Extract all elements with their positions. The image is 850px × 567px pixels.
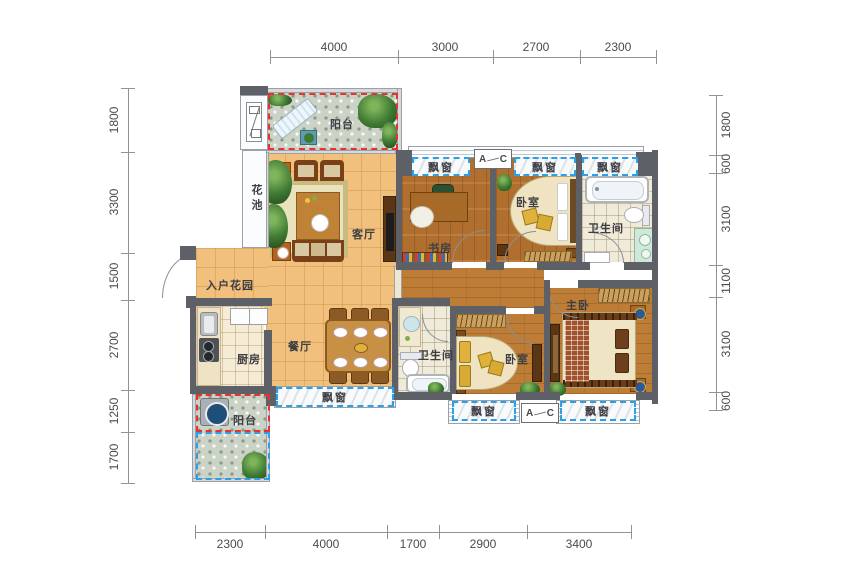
- section-line: [534, 412, 546, 416]
- wall: [636, 392, 658, 400]
- stove: [199, 338, 219, 362]
- wall: [266, 150, 396, 154]
- tick: [631, 525, 632, 539]
- dim-top-2: 3000: [415, 40, 475, 54]
- dim-left-1: 1800: [107, 90, 121, 150]
- label-bedroom-mid: 卧室: [505, 351, 529, 367]
- sofa: [292, 240, 344, 262]
- tick: [121, 152, 135, 153]
- wall: [624, 262, 658, 270]
- wall: [392, 392, 452, 400]
- dim-right-6: 600: [719, 371, 733, 431]
- label-balcony-bottom: 阳台: [233, 412, 257, 428]
- wall: [186, 296, 196, 308]
- wall: [450, 306, 506, 314]
- bathtub: [585, 176, 649, 203]
- tick: [121, 88, 135, 89]
- dim-line-left: [128, 88, 129, 483]
- wall: [264, 330, 272, 388]
- label-bathroom-top: 卫生间: [588, 220, 624, 236]
- wall: [396, 152, 402, 264]
- section-line: [487, 158, 499, 162]
- tick: [493, 50, 494, 64]
- section-marker-a: A: [526, 408, 533, 419]
- bay-window-label: 飘窗: [585, 403, 611, 419]
- tick: [270, 50, 271, 64]
- coffee-table: [296, 192, 340, 240]
- shower-area: [634, 228, 654, 264]
- label-living-room: 客厅: [352, 226, 376, 242]
- bay-window: 飘窗: [514, 157, 576, 176]
- dim-bottom-2: 4000: [296, 537, 356, 551]
- bay-window-label: 飘窗: [471, 403, 497, 419]
- wall: [537, 262, 590, 270]
- dim-left-6: 1700: [107, 427, 121, 487]
- label-master-bedroom: 主卧: [566, 297, 590, 313]
- label-entry-garden: 入户花园: [206, 277, 254, 293]
- round-rug: [410, 206, 434, 228]
- dim-right-2: 600: [719, 134, 733, 194]
- dim-right-5: 3100: [719, 314, 733, 374]
- floorplan-canvas: 4000 3000 2700 2300 2300 4000 1700 2900 …: [0, 0, 850, 567]
- dim-line-top: [270, 57, 656, 58]
- sink-counter: [399, 307, 421, 347]
- dining-table: [325, 319, 391, 373]
- armchair: [320, 160, 344, 181]
- wall: [544, 280, 550, 394]
- dim-top-4: 2300: [588, 40, 648, 54]
- wall: [490, 155, 496, 262]
- wardrobe: [456, 314, 506, 328]
- wall: [578, 280, 658, 288]
- dim-bottom-1: 2300: [200, 537, 260, 551]
- bay-window: 飘窗: [452, 401, 516, 421]
- tv-cabinet: [383, 196, 396, 262]
- wall: [190, 386, 272, 394]
- section-marker-ac: A C: [521, 403, 559, 423]
- dim-bottom-4: 2900: [453, 537, 513, 551]
- dim-line-right: [716, 95, 717, 410]
- dim-left-2: 3300: [107, 172, 121, 232]
- wall: [486, 262, 504, 270]
- wall: [516, 392, 560, 400]
- wall: [240, 86, 268, 95]
- dim-left-3: 1500: [107, 246, 121, 306]
- bay-window-label: 飘窗: [597, 159, 623, 175]
- wall: [180, 246, 196, 260]
- wall: [266, 152, 269, 248]
- plant: [497, 174, 512, 191]
- tick: [195, 525, 196, 539]
- tick: [265, 525, 266, 539]
- section-marker-c: C: [547, 408, 554, 419]
- wall: [192, 298, 272, 306]
- tick: [121, 432, 135, 433]
- wall: [652, 150, 658, 404]
- toilet: [624, 205, 650, 224]
- section-marker-c: C: [500, 154, 507, 165]
- dim-bottom-5: 3400: [549, 537, 609, 551]
- tick: [656, 50, 657, 64]
- dim-right-3: 3100: [719, 189, 733, 249]
- tick: [121, 390, 135, 391]
- section-marker-a: A: [479, 154, 486, 165]
- label-dining-room: 餐厅: [288, 338, 312, 354]
- drying-rack-icon: [246, 102, 262, 142]
- bay-window-label: 飘窗: [428, 159, 454, 175]
- bay-window-label: 飘窗: [532, 159, 558, 175]
- dim-left-4: 2700: [107, 315, 121, 375]
- label-bedroom-top: 卧室: [516, 194, 540, 210]
- dim-top-3: 2700: [506, 40, 566, 54]
- label-balcony-top: 阳台: [330, 116, 354, 132]
- dim-bottom-3: 1700: [383, 537, 443, 551]
- wall: [392, 306, 398, 394]
- tick: [398, 50, 399, 64]
- dim-top-1: 4000: [304, 40, 364, 54]
- dresser: [532, 344, 542, 382]
- kitchen-sink: [200, 312, 218, 336]
- tick: [121, 483, 135, 484]
- dim-right-4: 1100: [719, 251, 733, 311]
- dim-line-bottom: [195, 532, 631, 533]
- toilet: [400, 352, 420, 376]
- wall: [392, 298, 450, 306]
- gift-area-balcony-bottom-2: [196, 432, 270, 480]
- wall: [396, 262, 452, 270]
- wardrobe: [598, 288, 650, 303]
- tick: [580, 50, 581, 64]
- bay-window: 飘窗: [276, 387, 394, 407]
- label-study: 书房: [428, 240, 452, 256]
- bay-window: 飘窗: [560, 401, 636, 421]
- label-kitchen: 厨房: [237, 351, 261, 367]
- fridge: [230, 308, 268, 325]
- bay-window-label: 飘窗: [322, 389, 348, 405]
- tick: [527, 525, 528, 539]
- tv-cabinet: [550, 324, 560, 382]
- tick: [121, 300, 135, 301]
- armchair: [294, 160, 318, 181]
- section-marker-ac: A C: [474, 149, 512, 169]
- label-flower-bed: 花池: [248, 184, 264, 214]
- wall: [190, 306, 196, 390]
- tick: [121, 253, 135, 254]
- label-bathroom-mid: 卫生间: [418, 347, 454, 363]
- bed: [562, 312, 636, 388]
- bay-window: 飘窗: [412, 157, 470, 176]
- entry-door-arc: [162, 254, 195, 298]
- bay-window: 飘窗: [582, 157, 638, 176]
